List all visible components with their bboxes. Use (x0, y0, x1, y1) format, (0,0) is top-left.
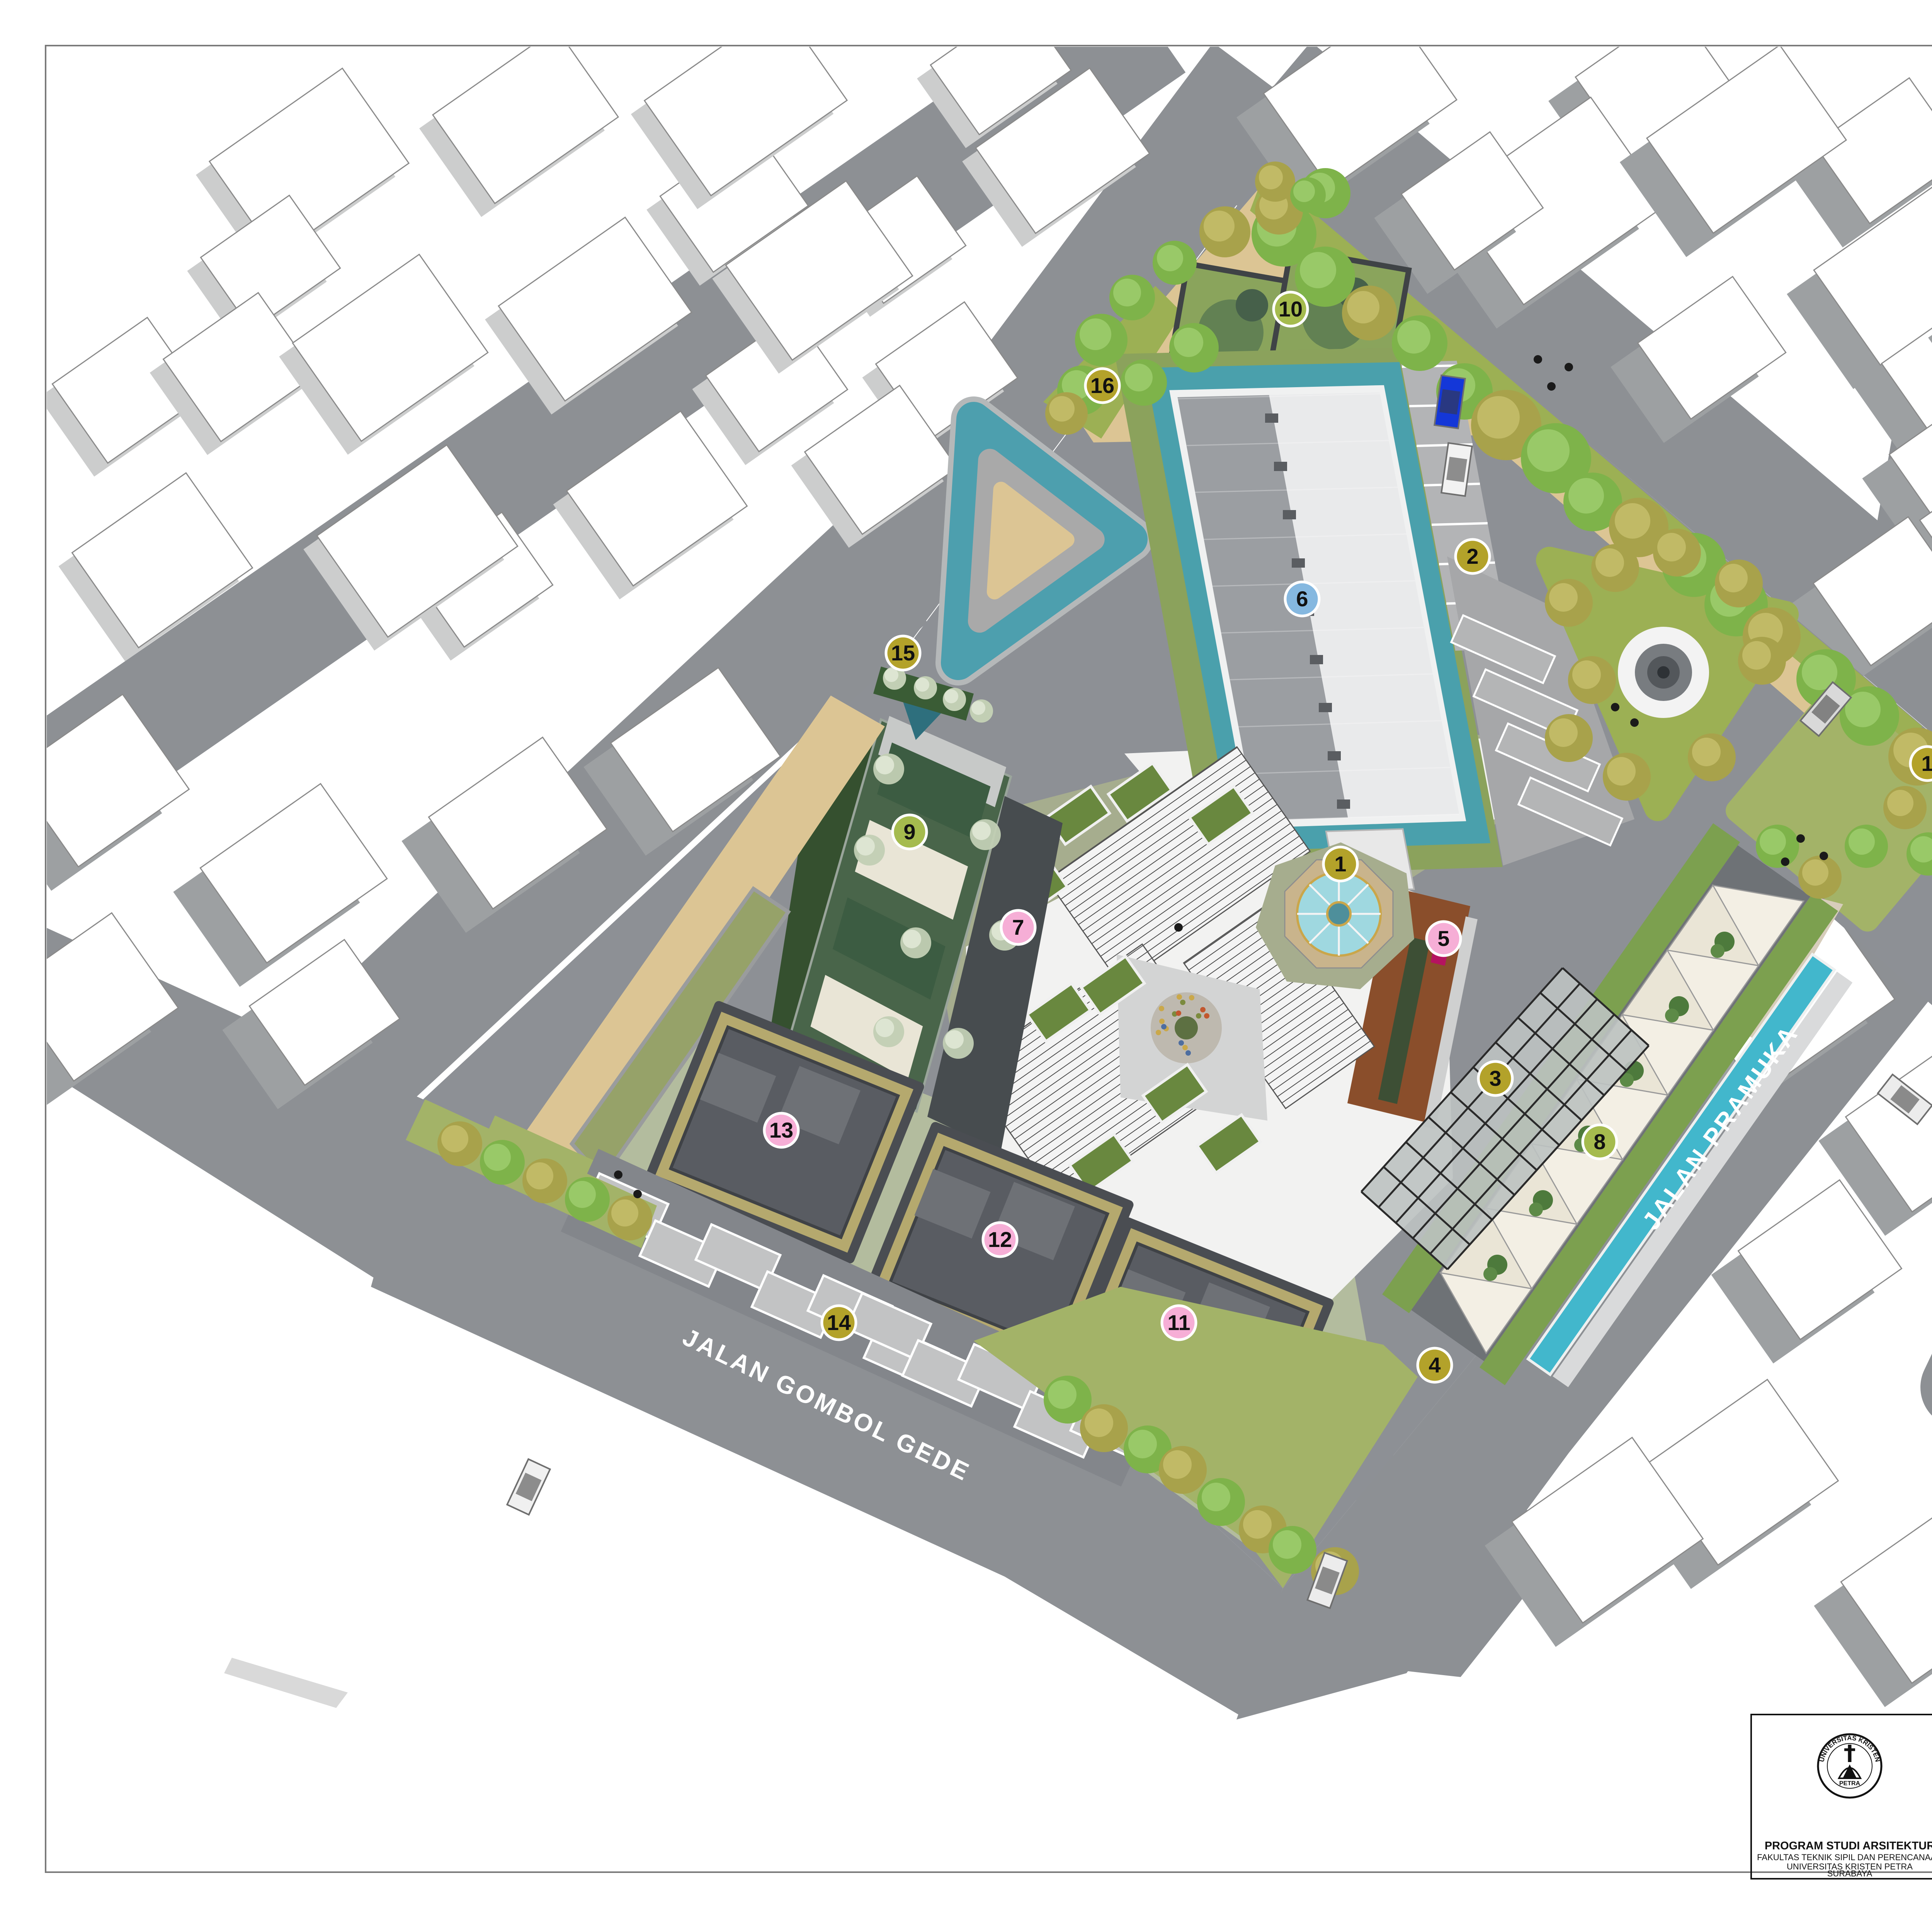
svg-text:SURABAYA: SURABAYA (1827, 1869, 1872, 1878)
svg-text:PROGRAM STUDI ARSITEKTUR: PROGRAM STUDI ARSITEKTUR (1765, 1840, 1932, 1852)
svg-text:3: 3 (1489, 1066, 1501, 1090)
svg-text:14: 14 (827, 1310, 851, 1335)
svg-text:4: 4 (1429, 1353, 1440, 1377)
svg-text:8: 8 (1594, 1129, 1605, 1154)
svg-text:FAKULTAS TEKNIK SIPIL DAN PERE: FAKULTAS TEKNIK SIPIL DAN PERENCANAAN (1757, 1852, 1932, 1862)
svg-text:10: 10 (1279, 297, 1303, 321)
svg-text:11: 11 (1167, 1310, 1190, 1335)
svg-text:5: 5 (1437, 926, 1449, 951)
svg-text:7: 7 (1012, 915, 1024, 939)
svg-text:13: 13 (769, 1118, 793, 1142)
svg-text:1: 1 (1921, 751, 1932, 776)
svg-text:9: 9 (903, 820, 915, 844)
svg-text:PETRA: PETRA (1839, 1780, 1861, 1787)
svg-text:15: 15 (891, 641, 915, 665)
svg-text:12: 12 (988, 1227, 1012, 1252)
svg-text:1: 1 (1334, 852, 1346, 876)
svg-text:16: 16 (1090, 373, 1114, 398)
svg-text:2: 2 (1466, 544, 1478, 568)
svg-text:6: 6 (1296, 587, 1308, 611)
